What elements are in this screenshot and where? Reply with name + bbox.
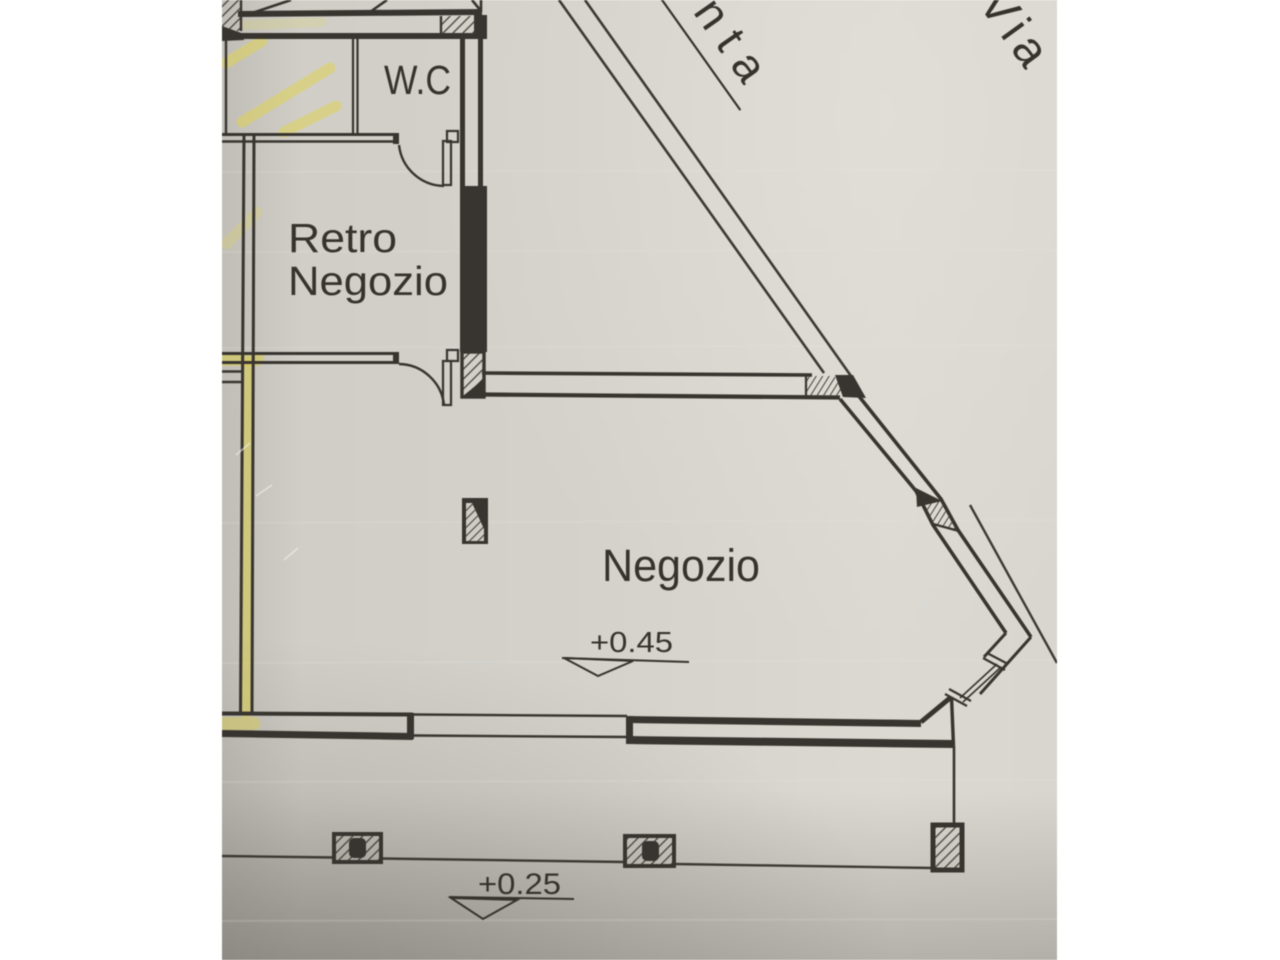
svg-text:+0.45: +0.45 (590, 627, 673, 659)
svg-text:W.C: W.C (384, 57, 451, 103)
svg-text:Negozio: Negozio (602, 540, 760, 591)
svg-text:+0.25: +0.25 (478, 868, 561, 901)
svg-text:Retro: Retro (288, 215, 397, 261)
svg-text:Negozio: Negozio (288, 258, 448, 304)
